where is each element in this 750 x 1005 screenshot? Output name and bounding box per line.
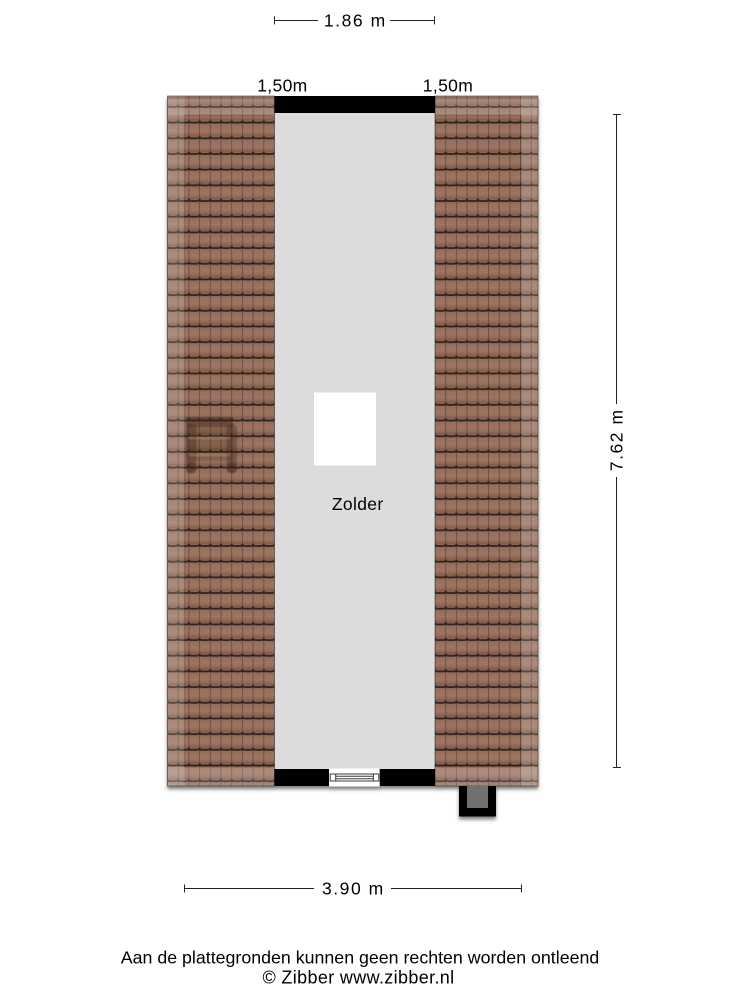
svg-text:7.62 m: 7.62 m [607,408,627,471]
svg-text:3.90 m: 3.90 m [322,879,385,899]
svg-text:© Zibber www.zibber.nl: © Zibber www.zibber.nl [262,968,454,988]
svg-text:Zolder: Zolder [332,494,384,514]
svg-text:1,50m: 1,50m [423,75,473,95]
svg-text:1.86 m: 1.86 m [324,11,387,31]
svg-text:1,50m: 1,50m [257,75,307,95]
svg-text:Aan de plattegronden kunnen ge: Aan de plattegronden kunnen geen rechten… [121,947,600,967]
